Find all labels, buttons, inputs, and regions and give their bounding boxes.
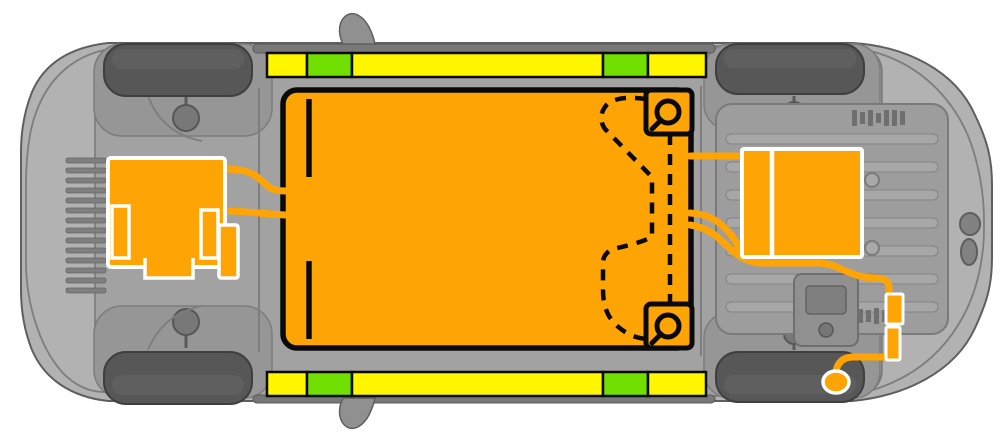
cooling-rib	[66, 188, 106, 193]
front-left-wheel	[104, 44, 252, 96]
cooling-rib	[66, 258, 106, 263]
rear-unit-housing	[742, 149, 862, 257]
cooling-rib	[66, 278, 106, 283]
right-door-mirror	[340, 398, 375, 428]
charge-port-connector	[823, 371, 849, 393]
cooling-rib	[66, 248, 106, 253]
top-rocker-green-segment	[603, 53, 648, 77]
front-right-hub	[173, 309, 199, 335]
cooling-rib	[66, 208, 106, 213]
cooling-rib	[66, 198, 106, 203]
vent-slot	[874, 308, 879, 324]
high-voltage-battery-pack	[283, 90, 692, 348]
front-right-wheel	[104, 352, 252, 404]
cable-front-unit-lower	[230, 211, 286, 215]
left-door-mirror	[340, 14, 375, 44]
cooling-rib	[66, 178, 106, 183]
front-left-hub	[173, 105, 199, 131]
vent-slot	[860, 112, 865, 124]
battery-enclosure	[283, 90, 691, 348]
top-rocker-yellow-segment	[267, 53, 307, 77]
vent-slot	[852, 110, 857, 126]
rear-module-lower	[886, 327, 900, 360]
vent-slot	[892, 110, 897, 126]
top-rocker-yellow-segment	[352, 53, 603, 77]
top-rocker-yellow-segment	[648, 53, 706, 77]
rear-left-wheel	[716, 44, 864, 94]
bottom-rocker-green-segment	[307, 372, 352, 396]
bottom-rocker-yellow-segment	[267, 372, 307, 396]
rear-subframe-plate	[806, 286, 846, 314]
bottom-rocker-green-segment	[603, 372, 648, 396]
cooling-rib	[66, 288, 106, 293]
bottom-rocker-cut-zone-strip	[267, 372, 706, 396]
ev-underbody-diagram	[0, 0, 998, 442]
rear-module-upper	[886, 294, 903, 324]
battery-service-fastener-lower	[646, 304, 692, 348]
front-unit-housing	[108, 158, 225, 267]
cooling-rib	[66, 218, 106, 223]
front-unit-side-module	[219, 225, 238, 278]
vent-slot	[884, 110, 889, 126]
vent-slot	[868, 110, 873, 126]
top-rocker-green-segment	[307, 53, 352, 77]
bottom-rocker-yellow-segment	[352, 372, 603, 396]
deck-drain-plug-upper	[865, 173, 879, 187]
vent-slot	[900, 111, 905, 125]
rear-tow-point-lower	[961, 239, 977, 265]
cooling-rib	[66, 158, 106, 163]
vent-slot	[876, 113, 881, 123]
top-rocker-cut-zone-strip	[267, 53, 706, 77]
rear-tow-point-upper	[960, 213, 980, 235]
cooling-rib	[66, 228, 106, 233]
vent-slot	[866, 310, 871, 322]
rear-subframe-bolt	[819, 323, 833, 337]
cooling-rib	[66, 268, 106, 273]
left-rocker-sill	[253, 44, 715, 53]
deck-rib	[726, 134, 938, 144]
rear-power-electronics-unit	[742, 149, 862, 257]
bottom-rocker-yellow-segment	[648, 372, 706, 396]
deck-drain-plug-lower	[865, 241, 879, 255]
cooling-rib	[66, 168, 106, 173]
cooling-rib	[66, 238, 106, 243]
front-drive-unit	[108, 158, 238, 278]
battery-service-fastener-upper	[646, 90, 692, 134]
front-unit-lower-tab-fill	[145, 260, 193, 277]
